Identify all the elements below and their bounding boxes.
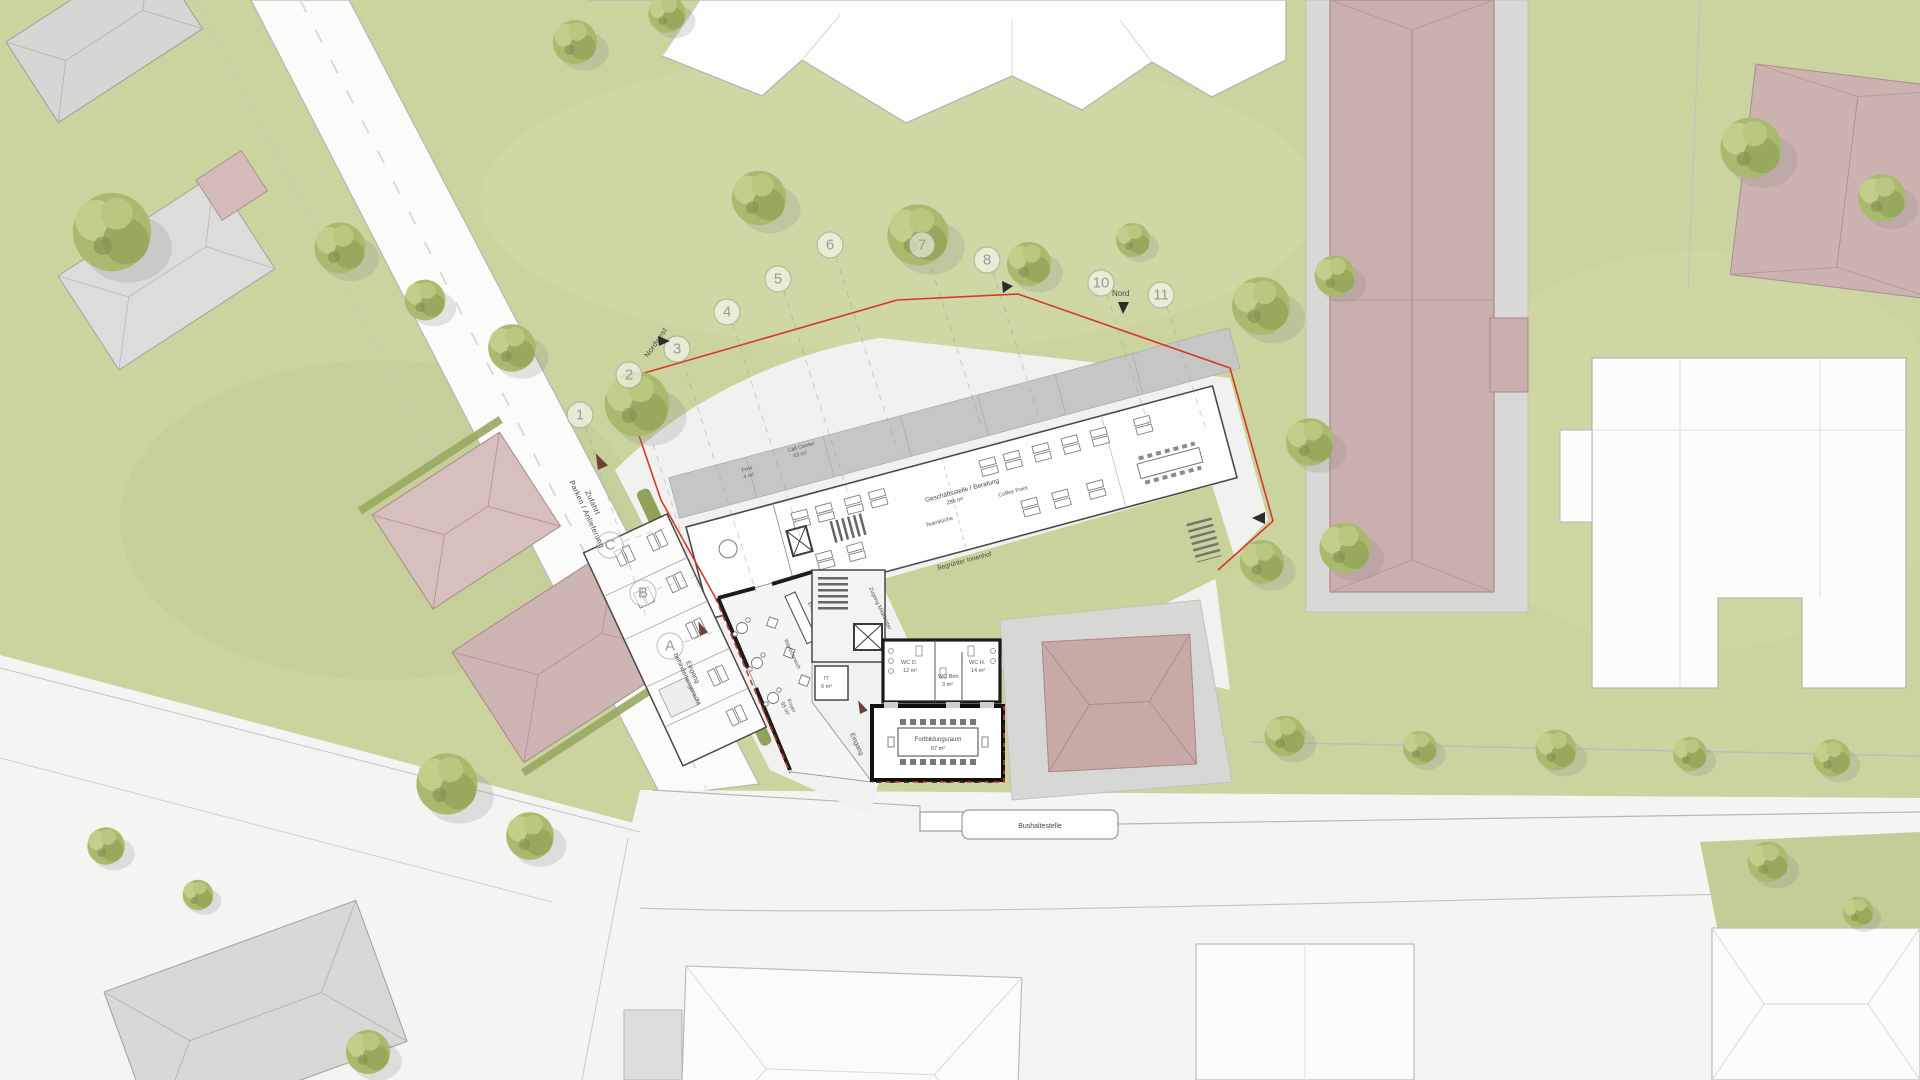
site-plan-canvas: Geschäftsstelle / Beratung 286 m² Teamkü… xyxy=(0,0,1920,1080)
grid-bubble-11: 11 xyxy=(1148,282,1174,308)
svg-text:11: 11 xyxy=(1153,287,1169,304)
room-area: 12 m² xyxy=(903,668,917,674)
svg-text:2: 2 xyxy=(625,367,633,384)
svg-text:7: 7 xyxy=(918,237,926,254)
grid-bubble-2: 2 xyxy=(616,362,642,388)
svg-text:6: 6 xyxy=(826,237,834,254)
existing-house-southeast xyxy=(1712,928,1920,1080)
svg-text:B: B xyxy=(638,585,648,602)
room-area: 57 m² xyxy=(931,746,945,752)
room-label: WC Beh. xyxy=(938,674,960,680)
svg-text:A: A xyxy=(665,638,675,655)
room-label: WC D. xyxy=(901,660,918,666)
svg-text:3: 3 xyxy=(673,341,681,358)
it-room xyxy=(815,666,848,700)
building-annex xyxy=(624,1010,682,1080)
grid-bubble-6: 6 xyxy=(817,232,843,258)
existing-house-south xyxy=(679,966,1022,1080)
room-area: 6 m² xyxy=(821,684,832,690)
grid-bubble-1: 1 xyxy=(567,402,593,428)
nord-label: Nord xyxy=(1112,289,1129,298)
site-plan-drawing: Geschäftsstelle / Beratung 286 m² Teamkü… xyxy=(0,0,1920,1080)
grid-bubble-7: 7 xyxy=(909,232,935,258)
svg-text:5: 5 xyxy=(774,271,782,288)
room-area: 3 m² xyxy=(942,682,953,688)
room-label: Fortbildungsraum xyxy=(915,737,962,743)
room-label: WC H. xyxy=(969,660,986,666)
chair xyxy=(888,737,894,747)
room-area: 14 m² xyxy=(971,668,985,674)
svg-text:8: 8 xyxy=(983,252,991,269)
door-mark xyxy=(980,702,994,708)
building-annex xyxy=(1560,430,1592,522)
grid-bubble-10: 10 xyxy=(1088,270,1114,296)
bushaltestelle-label: Bushaltestelle xyxy=(1018,823,1062,830)
grid-bubble-3: 3 xyxy=(664,336,690,362)
svg-text:4: 4 xyxy=(723,304,731,321)
grid-bubble-8: 8 xyxy=(974,247,1000,273)
room-label: IT xyxy=(824,676,830,682)
svg-text:1: 1 xyxy=(576,407,584,424)
grid-bubble-4: 4 xyxy=(714,299,740,325)
door-mark xyxy=(884,702,898,708)
svg-text:10: 10 xyxy=(1093,275,1110,292)
existing-house-rose-site xyxy=(1042,634,1197,772)
grid-bubble-B: B xyxy=(630,580,656,606)
door-mark xyxy=(946,702,960,708)
bus-shelter xyxy=(920,812,964,831)
grid-bubble-5: 5 xyxy=(765,266,791,292)
rose-building-wing xyxy=(1490,318,1528,392)
chair xyxy=(982,737,988,747)
